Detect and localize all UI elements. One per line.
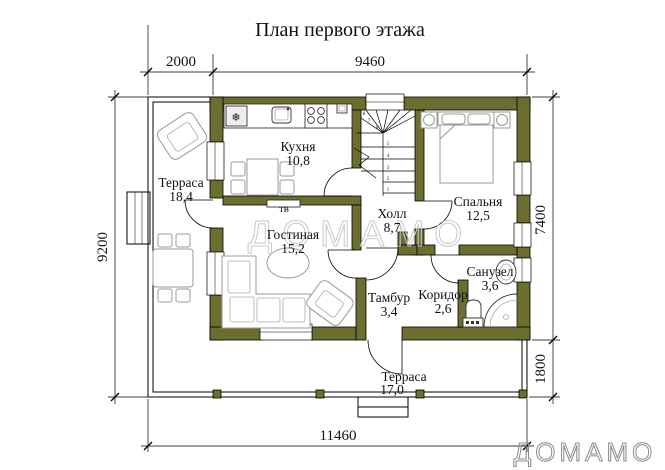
toilet-icon (463, 300, 483, 327)
svg-text:Спальня: Спальня (454, 194, 503, 209)
room-label-bathroom: Санузел3,6 (466, 264, 513, 293)
svg-text:Гостиная: Гостиная (267, 227, 319, 242)
svg-text:5: 5 (387, 142, 390, 147)
nightstand-right (494, 112, 510, 128)
svg-text:Холл: Холл (378, 206, 407, 221)
door-terrace-living (185, 200, 213, 228)
terrace-post (316, 390, 324, 398)
svg-text:Тамбур: Тамбур (368, 290, 411, 305)
door-living-hall (328, 250, 356, 278)
sink-icon (272, 107, 291, 123)
shower-icon (484, 294, 517, 327)
bed (438, 112, 495, 183)
svg-text:3,6: 3,6 (482, 278, 499, 293)
svg-text:8: 8 (363, 112, 366, 117)
room-label-vestibule: Тамбур3,4 (368, 290, 411, 319)
svg-text:2,6: 2,6 (435, 301, 452, 316)
terrace-dining-set (153, 234, 193, 302)
boiler-icon (337, 104, 347, 113)
svg-text:Кухня: Кухня (281, 139, 316, 154)
svg-text:4: 4 (387, 154, 390, 159)
entry-steps (358, 397, 408, 417)
svg-text:10,8: 10,8 (286, 153, 310, 168)
terrace-post (213, 390, 221, 398)
svg-text:Терраса: Терраса (158, 175, 203, 190)
fridge-icon: ❄ (226, 106, 247, 126)
svg-text:❄: ❄ (231, 112, 240, 124)
room-label-kitchen: Кухня10,8 (281, 139, 316, 168)
svg-text:1: 1 (387, 188, 390, 193)
nightstand-left (421, 112, 437, 128)
dimension-bottom: 11460 (141, 399, 534, 452)
dimension-left: 9200 (95, 90, 150, 404)
svg-text:Коридор: Коридор (418, 287, 468, 302)
svg-text:11460: 11460 (320, 428, 357, 444)
staircase: 1 2 3 4 5 6 7 8 (354, 110, 415, 196)
porch-steps-left (127, 192, 150, 244)
svg-text:7400: 7400 (533, 205, 549, 235)
svg-text:Санузел: Санузел (466, 264, 513, 279)
svg-text:9460: 9460 (355, 54, 385, 70)
tv-label: тв (279, 203, 289, 215)
svg-text:3: 3 (387, 166, 390, 171)
terrace-post (416, 390, 424, 398)
armchair-living (304, 278, 355, 327)
dimension-right: 7400 1800 (529, 90, 560, 404)
kitchen-counter: ❄ (224, 104, 352, 128)
floor-plan-svg: 1 2 3 4 5 6 7 8 ❄ (0, 0, 665, 470)
stove-icon (305, 104, 327, 128)
terrace-post (519, 390, 527, 398)
page-title: План первого этажа (255, 19, 425, 41)
door-corridor (431, 255, 459, 283)
svg-text:12,5: 12,5 (466, 208, 490, 223)
svg-text:18,4: 18,4 (169, 189, 193, 204)
svg-text:3,4: 3,4 (381, 304, 398, 319)
armchair-terrace (155, 110, 209, 161)
svg-text:9200: 9200 (95, 232, 111, 262)
svg-text:17,0: 17,0 (380, 382, 404, 397)
kitchen-dining-set (231, 159, 294, 195)
floor-plan-page: 1 2 3 4 5 6 7 8 ❄ (0, 0, 665, 470)
svg-text:2000: 2000 (166, 54, 196, 70)
svg-text:2: 2 (387, 177, 390, 182)
door-kitchen (324, 168, 352, 196)
svg-text:1800: 1800 (533, 354, 549, 384)
svg-text:7: 7 (368, 119, 371, 124)
svg-text:15,2: 15,2 (281, 241, 305, 256)
svg-text:8,7: 8,7 (384, 220, 401, 235)
watermark-corner: ДОМАМО (514, 437, 657, 467)
